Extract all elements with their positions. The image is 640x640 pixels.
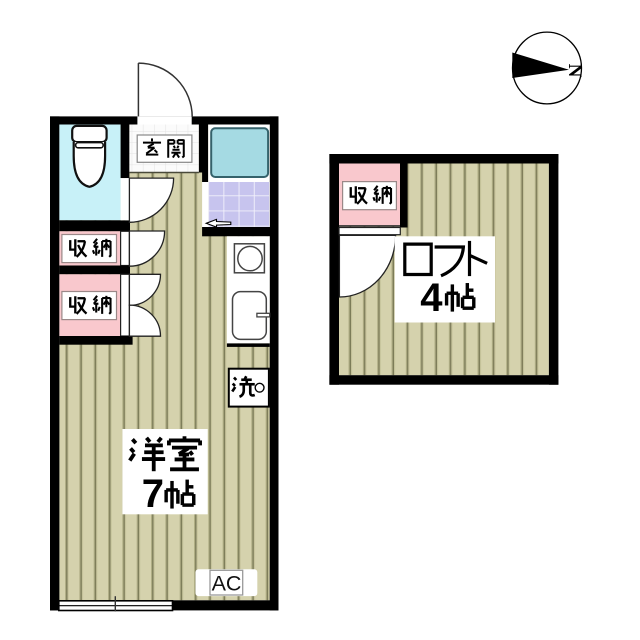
svg-text:7: 7 bbox=[142, 472, 164, 516]
svg-text:4: 4 bbox=[420, 276, 443, 320]
svg-text:N: N bbox=[564, 64, 585, 78]
svg-text:AC: AC bbox=[212, 572, 242, 596]
